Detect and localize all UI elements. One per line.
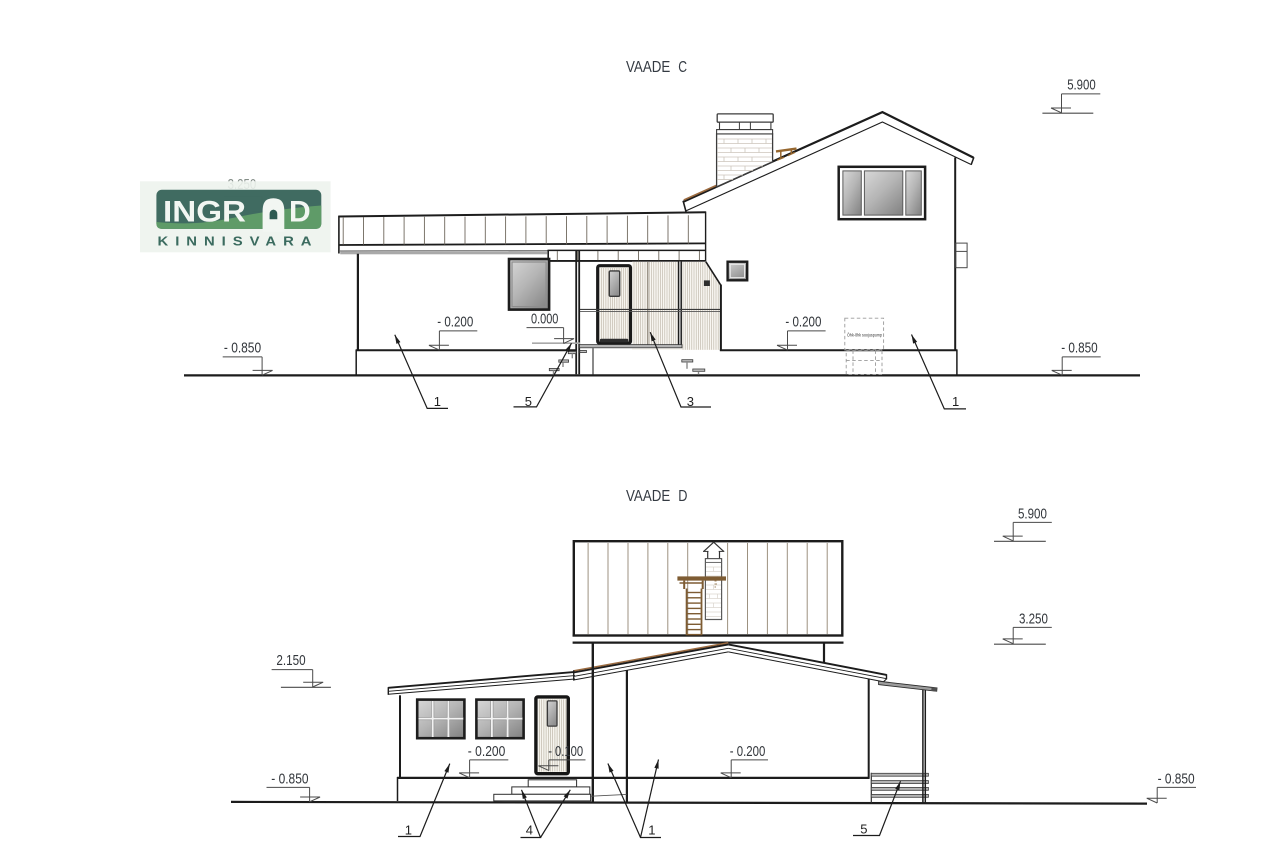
svg-text:- 0.200: - 0.200 <box>468 743 506 760</box>
svg-text:3.250: 3.250 <box>1019 610 1048 627</box>
svg-text:1: 1 <box>434 394 441 409</box>
svg-text:- 0.100: - 0.100 <box>548 743 583 760</box>
svg-text:3: 3 <box>687 394 694 409</box>
svg-text:0.000: 0.000 <box>531 310 558 327</box>
svg-text:- 0.200: - 0.200 <box>730 743 766 760</box>
svg-text:1: 1 <box>952 394 959 409</box>
svg-text:VAADE: VAADE <box>626 59 670 76</box>
svg-text:- 0.850: - 0.850 <box>271 771 308 788</box>
svg-text:C: C <box>678 59 687 76</box>
svg-text:2.150: 2.150 <box>276 652 305 669</box>
svg-text:D: D <box>289 196 311 229</box>
svg-text:4: 4 <box>526 823 533 838</box>
svg-text:D: D <box>678 488 687 505</box>
svg-text:- 0.850: - 0.850 <box>1158 771 1195 788</box>
svg-text:1: 1 <box>648 823 655 838</box>
svg-text:INGR: INGR <box>163 196 246 229</box>
svg-text:5: 5 <box>860 822 867 837</box>
svg-text:VAADE: VAADE <box>626 488 670 505</box>
svg-text:KINNISVARA: KINNISVARA <box>158 234 319 249</box>
svg-text:Õhk-õhk soojuspump: Õhk-õhk soojuspump <box>847 332 882 338</box>
svg-text:5: 5 <box>525 394 532 409</box>
svg-text:- 0.200: - 0.200 <box>785 313 821 330</box>
svg-text:5.900: 5.900 <box>1018 506 1047 523</box>
svg-text:- 0.850: - 0.850 <box>1061 340 1098 357</box>
svg-text:5.900: 5.900 <box>1067 76 1096 93</box>
svg-text:- 0.850: - 0.850 <box>224 340 261 357</box>
svg-text:- 0.200: - 0.200 <box>437 313 473 330</box>
svg-text:1: 1 <box>405 823 412 838</box>
